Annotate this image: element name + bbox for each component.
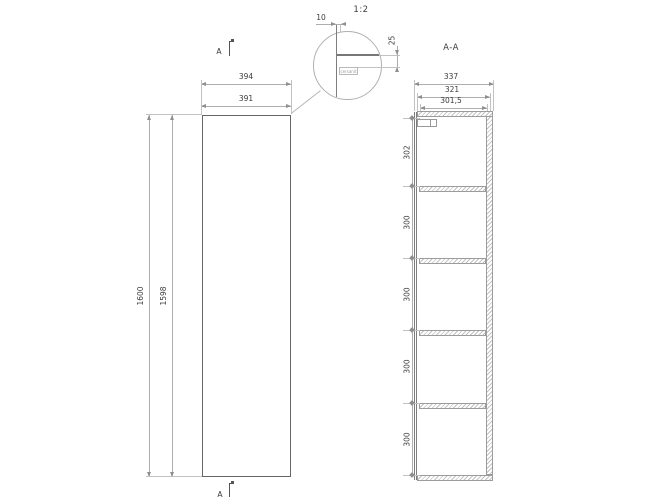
- dim-spacing-label: 300: [403, 425, 412, 455]
- ext-line: [291, 80, 292, 114]
- back-panel-section: [486, 116, 493, 475]
- bottom-panel-section: [417, 475, 493, 481]
- section-marker-top-label: A: [212, 47, 226, 56]
- ext-line: [490, 93, 491, 111]
- ext-line: [201, 80, 202, 114]
- dim-spacing-label: 302: [403, 138, 412, 168]
- detail-circle: [313, 31, 382, 100]
- dim-spacing-label: 300: [403, 208, 412, 238]
- section-cut-mark-bottom: [229, 483, 230, 497]
- dim-overhang-label: 25: [388, 26, 397, 56]
- ext-line: [420, 104, 421, 111]
- dim-depth-outer-label: 337: [426, 72, 476, 81]
- dim-arrow: [170, 115, 174, 120]
- dim-depth-inner-label: 301,5: [426, 96, 476, 105]
- dim-spacing-label: 300: [403, 352, 412, 382]
- dim-width-inner-label: 391: [221, 94, 271, 103]
- detail-scale-label: 1:2: [346, 6, 376, 15]
- section-cut-mark-top: [229, 41, 230, 56]
- section-marker-bottom-label: A: [213, 490, 227, 499]
- dim-height-outer-label: 1600: [136, 276, 146, 316]
- wall-bracket-detail: [417, 119, 437, 127]
- wall-bracket-divider: [430, 119, 431, 127]
- dim-arrow: [147, 115, 151, 120]
- section-cut-arrow-top: [231, 39, 234, 42]
- dim-depth-carcass-label: 321: [427, 85, 477, 94]
- door-section-line: [414, 112, 417, 480]
- ext-line: [146, 114, 202, 115]
- shelf-section: [419, 186, 486, 192]
- dim-spacing-label: 300: [403, 280, 412, 310]
- shelf-section: [419, 330, 486, 336]
- detail-top-edge-line: [337, 54, 379, 56]
- ext-line: [414, 80, 415, 111]
- dim-width-outer-label: 394: [221, 72, 271, 81]
- cabinet-front-outline: [202, 115, 291, 477]
- shelf-section: [419, 258, 486, 264]
- dim-height-inner-label: 1598: [159, 276, 169, 316]
- dim-line-shelf-chain: [412, 118, 413, 476]
- dim-line-height-inner: [172, 115, 173, 477]
- top-panel-section: [417, 111, 493, 117]
- detail-leader-line: [291, 90, 321, 114]
- dim-arrow: [331, 22, 336, 26]
- ext-line: [417, 93, 418, 111]
- brand-label-box: cersanit: [339, 67, 358, 75]
- dim-line-height-outer: [149, 115, 150, 477]
- dim-line-depth-inner: [420, 108, 487, 109]
- dim-line-width-outer: [201, 84, 291, 85]
- dim-line-width-inner: [201, 106, 291, 107]
- ext-line: [358, 67, 400, 68]
- shelf-section: [419, 403, 486, 409]
- ext-line: [493, 80, 494, 111]
- section-view-title: A-A: [426, 44, 476, 53]
- ext-line: [487, 104, 488, 111]
- ext-line: [146, 476, 202, 477]
- section-cut-arrow-bottom: [231, 481, 234, 484]
- dim-gap-label: 10: [308, 13, 334, 22]
- detail-front-face-line: [336, 24, 337, 97]
- dim-arrow: [341, 22, 346, 26]
- technical-drawing-canvas: A A 394 391 1600 1598: [0, 0, 670, 504]
